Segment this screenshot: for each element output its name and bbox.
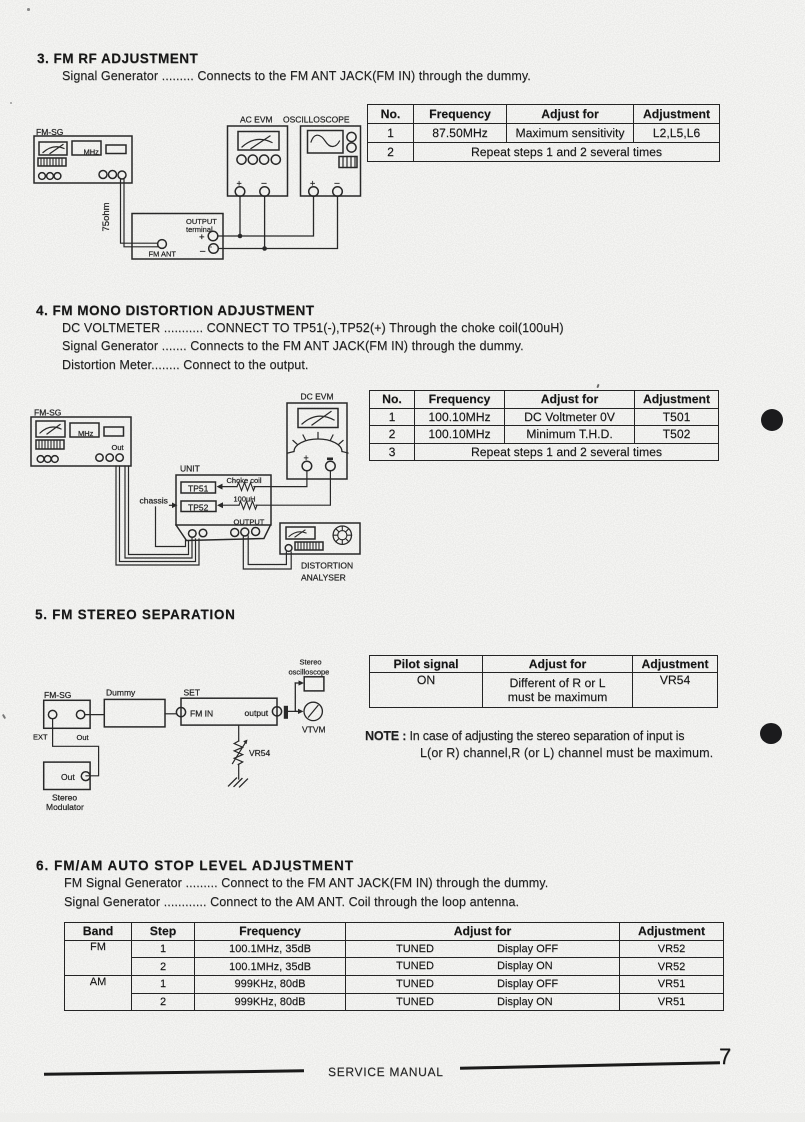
svg-text:oscilloscope: oscilloscope [289,668,330,677]
svg-text:Modulator: Modulator [46,802,84,812]
svg-text:FM-SG: FM-SG [44,690,71,700]
svg-text:VTVM: VTVM [302,725,326,735]
svg-text:SET: SET [184,688,201,698]
svg-text:FM IN: FM IN [190,709,213,719]
svg-text:output: output [245,708,269,718]
svg-text:Stereo: Stereo [300,658,322,667]
svg-text:EXT: EXT [33,733,48,742]
svg-text:VR54: VR54 [249,748,271,758]
svg-text:Out: Out [61,772,75,782]
svg-text:Out: Out [77,733,90,742]
svg-text:Stereo: Stereo [52,793,77,803]
svg-text:Dummy: Dummy [106,688,136,698]
